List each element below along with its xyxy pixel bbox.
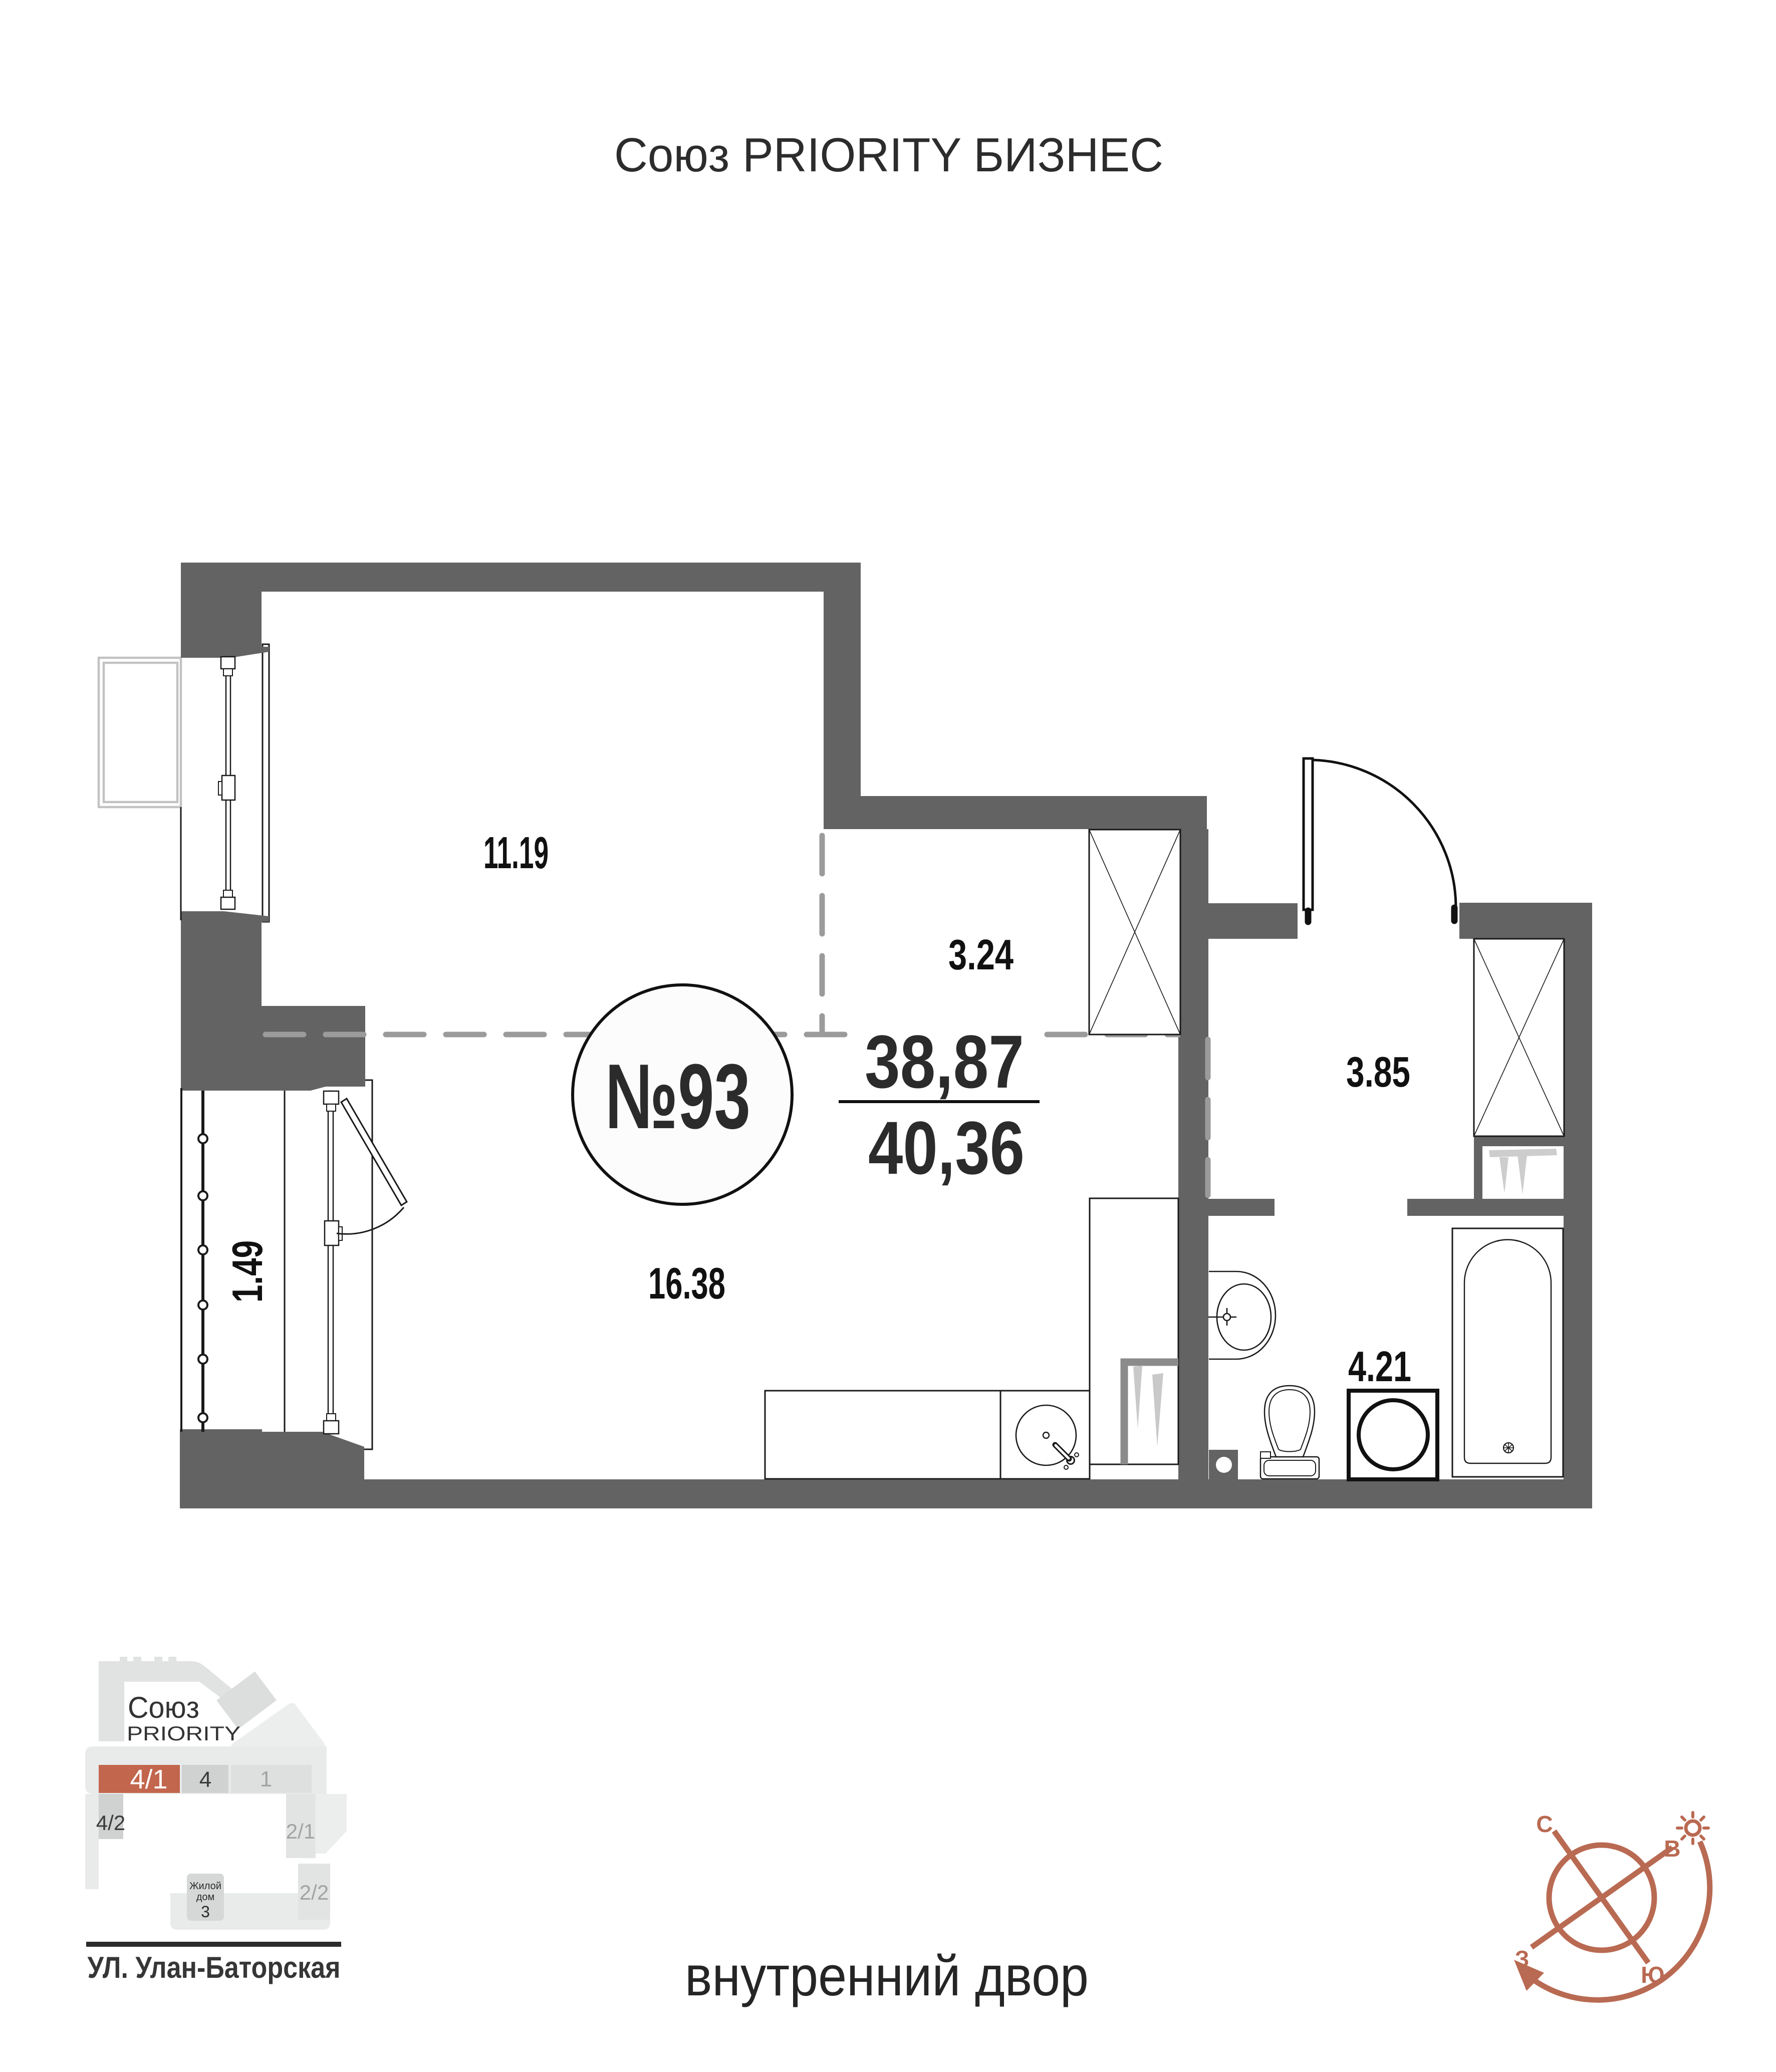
svg-text:3.24: 3.24	[948, 931, 1013, 979]
svg-text:3: 3	[201, 1903, 210, 1921]
svg-text:В: В	[1664, 1836, 1680, 1862]
svg-text:дом: дом	[196, 1892, 215, 1903]
svg-text:1.49: 1.49	[224, 1240, 272, 1303]
svg-text:38,87: 38,87	[865, 1019, 1024, 1104]
svg-text:11.19: 11.19	[483, 828, 549, 878]
svg-text:4/2: 4/2	[96, 1811, 125, 1835]
svg-text:40,36: 40,36	[868, 1106, 1025, 1190]
svg-text:16.38: 16.38	[648, 1258, 725, 1308]
svg-text:№93: №93	[605, 1045, 750, 1148]
svg-text:З: З	[1515, 1946, 1530, 1972]
svg-text:2/2: 2/2	[300, 1881, 329, 1904]
svg-text:4: 4	[199, 1767, 211, 1792]
svg-text:Союз PRIORITY БИЗНЕС: Союз PRIORITY БИЗНЕС	[614, 128, 1163, 182]
svg-text:4.21: 4.21	[1348, 1343, 1411, 1391]
svg-text:УЛ. Улан-Баторская: УЛ. Улан-Баторская	[88, 1951, 341, 1984]
svg-text:внутренний двор: внутренний двор	[685, 1945, 1089, 2007]
svg-text:1: 1	[260, 1767, 272, 1791]
svg-text:2/1: 2/1	[286, 1820, 315, 1843]
svg-text:Жилой: Жилой	[189, 1881, 221, 1892]
svg-text:PRIORITY: PRIORITY	[127, 1723, 240, 1745]
svg-text:Союз: Союз	[128, 1691, 199, 1724]
svg-text:С: С	[1536, 1811, 1553, 1837]
svg-text:Ю: Ю	[1641, 1962, 1664, 1988]
svg-text:3.85: 3.85	[1346, 1049, 1410, 1096]
svg-text:4/1: 4/1	[130, 1764, 167, 1794]
